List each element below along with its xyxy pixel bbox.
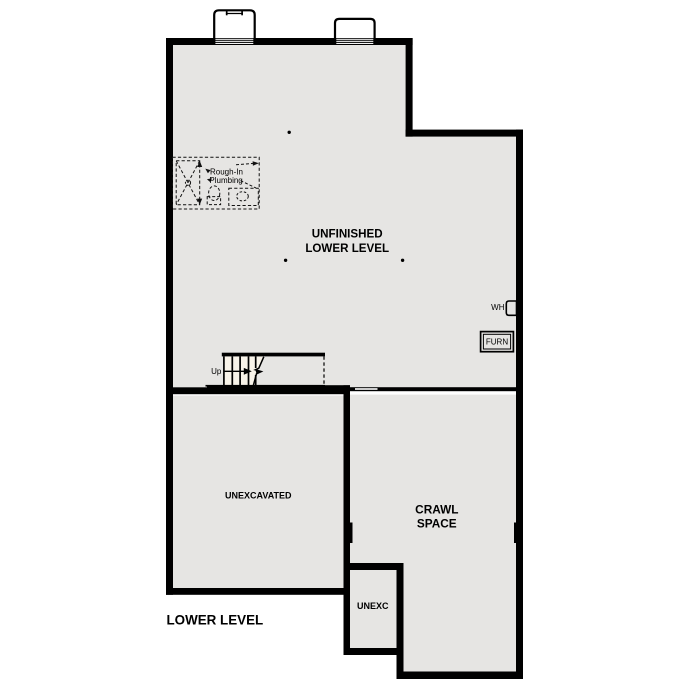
svg-text:SPACE: SPACE	[417, 517, 457, 531]
svg-text:Plumbing: Plumbing	[209, 176, 242, 185]
svg-text:CRAWL: CRAWL	[415, 502, 458, 516]
svg-text:UNEXCAVATED: UNEXCAVATED	[225, 490, 292, 500]
svg-text:FURN: FURN	[486, 338, 508, 347]
svg-text:LOWER LEVEL: LOWER LEVEL	[167, 613, 264, 628]
svg-text:Up: Up	[211, 367, 222, 376]
svg-text:WH: WH	[491, 303, 505, 312]
svg-text:UNEXC: UNEXC	[357, 601, 389, 611]
svg-text:LOWER LEVEL: LOWER LEVEL	[305, 242, 389, 255]
svg-text:UNFINISHED: UNFINISHED	[312, 228, 383, 241]
